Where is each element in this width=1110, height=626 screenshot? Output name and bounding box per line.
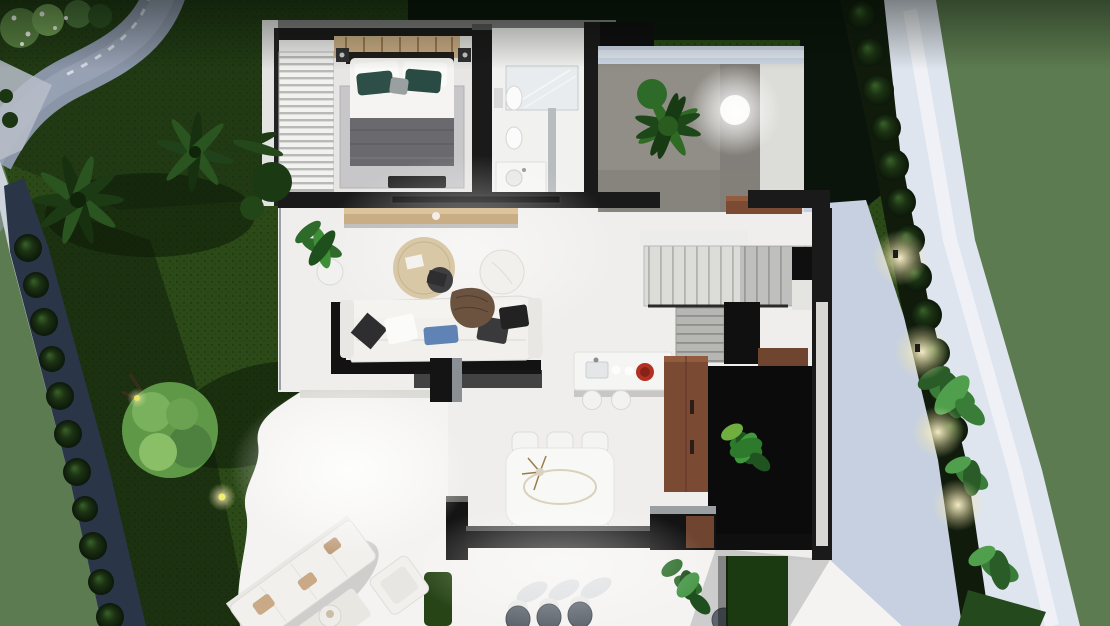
east-wall-lit-face <box>816 302 828 546</box>
bidet <box>506 127 522 149</box>
wall-cap <box>452 358 462 402</box>
toilet-tank <box>494 88 503 108</box>
faucet <box>594 358 599 363</box>
walkway-uplight <box>932 479 984 531</box>
bush <box>2 112 18 128</box>
bed-pillow-teal <box>356 70 394 96</box>
bush <box>72 496 98 522</box>
render-stage <box>0 0 1110 626</box>
bush <box>871 113 901 143</box>
plate <box>625 367 634 376</box>
hedge-shadow <box>718 556 728 626</box>
patio-south-wall <box>708 534 812 550</box>
bush <box>877 149 909 181</box>
bush <box>14 234 42 262</box>
stair-north-wall <box>748 190 830 208</box>
clipped-hedge-box <box>726 556 788 626</box>
villa-aerial-render <box>0 0 1110 626</box>
lawn-bollard-light <box>208 483 236 511</box>
sink <box>586 362 608 378</box>
plate <box>612 366 621 375</box>
pillow-black <box>499 304 530 330</box>
vase <box>536 468 544 476</box>
bush <box>886 187 916 217</box>
walkway-uplight <box>894 324 950 380</box>
interior-patio <box>708 366 812 550</box>
bush <box>23 272 49 298</box>
garden-bush <box>240 196 264 220</box>
walkway-uplight <box>912 406 964 458</box>
bush <box>79 532 107 560</box>
bush <box>862 74 894 106</box>
stair-side-wall <box>724 302 760 364</box>
cabinet-handle <box>690 440 694 454</box>
bed-pillow-teal <box>404 68 442 93</box>
console-decor <box>432 212 440 220</box>
bar-stool <box>583 391 602 410</box>
terrace-bloom <box>230 385 470 555</box>
stair-treads-lower <box>676 308 724 362</box>
cabinet-handle <box>690 400 694 414</box>
entry-courtyard <box>598 46 804 214</box>
terrace-bloom <box>410 500 710 626</box>
bush <box>30 308 58 336</box>
bush <box>46 382 74 410</box>
bush <box>88 569 114 595</box>
bush <box>63 458 91 486</box>
pillow-blue <box>423 325 458 346</box>
console-top <box>344 208 518 214</box>
lawn-bollard-light <box>127 388 147 408</box>
bar-stool <box>612 391 631 410</box>
console-shadow <box>344 224 518 228</box>
red-pot-inner <box>640 367 650 377</box>
bush <box>39 346 65 372</box>
light-post <box>893 250 898 258</box>
garden-bush <box>252 162 292 202</box>
side-table-item <box>326 610 334 618</box>
light-post <box>915 344 920 352</box>
bed-pillow-gray <box>389 77 409 95</box>
bush <box>54 420 82 448</box>
toilet <box>506 86 522 110</box>
walkway-uplight <box>872 230 928 286</box>
spotlight-core <box>720 95 750 125</box>
stair-wall-band <box>640 230 748 246</box>
dusk-vignette <box>0 0 1110 70</box>
